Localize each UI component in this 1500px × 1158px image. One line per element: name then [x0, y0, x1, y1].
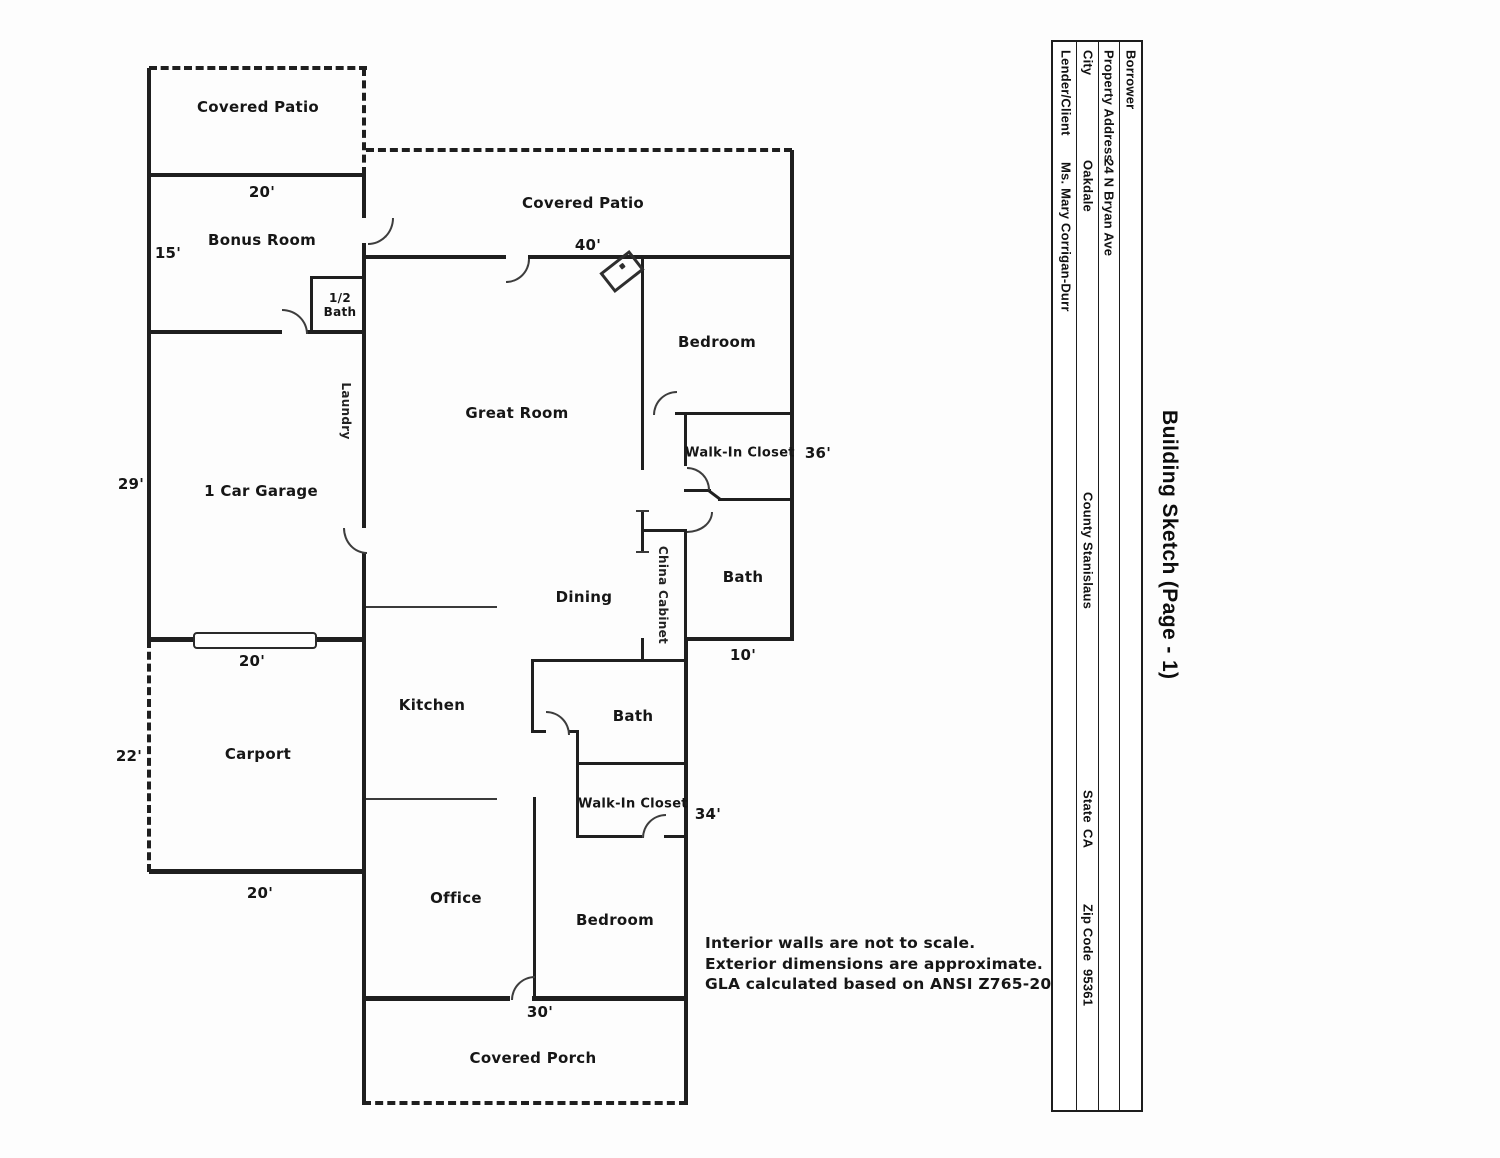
door-arc: [687, 512, 713, 533]
wall: [149, 173, 366, 177]
table-row-lender-client: Lender/Client Ms. Mary Corrigan-Durr: [1056, 42, 1077, 1110]
cell-label: Zip Code: [1080, 904, 1095, 961]
dashed-wall: [147, 640, 151, 872]
wall: [362, 243, 366, 528]
rotated-sidebar: Building Sketch (Page - 1) Borrower Prop…: [1051, 40, 1193, 1112]
room-label-dining: Dining: [556, 588, 613, 606]
counter-line: [366, 606, 497, 608]
door-arc: [642, 814, 666, 838]
door-arc: [368, 218, 394, 245]
room-label-bonus-room: Bonus Room: [208, 231, 316, 249]
room-label-walk-in-closet-middle: Walk-In Closet: [578, 797, 688, 812]
room-label-covered-patio-left: Covered Patio: [197, 98, 319, 116]
wall: [362, 255, 506, 259]
wall: [310, 278, 313, 333]
cell-label: Lender/Client: [1059, 50, 1074, 136]
room-label-covered-patio-top: Covered Patio: [522, 194, 644, 212]
dashed-wall: [149, 66, 367, 70]
wall: [310, 276, 366, 279]
wall: [576, 835, 642, 838]
wall: [664, 835, 687, 838]
door-arc: [687, 467, 710, 490]
dimension-label: 40': [575, 236, 601, 254]
room-label-walk-in-closet-right: Walk-In Closet: [685, 446, 795, 461]
dashed-wall: [363, 1101, 687, 1105]
china-cabinet-symbol: [636, 510, 649, 512]
wall: [528, 255, 794, 259]
wall: [641, 529, 686, 532]
dimension-label: 29': [118, 475, 144, 493]
sketch-notes: Interior walls are not to scale. Exterio…: [705, 933, 1079, 995]
note-line: Exterior dimensions are approximate.: [705, 954, 1079, 975]
wall: [149, 330, 282, 334]
cell-value: Oakdale: [1080, 160, 1095, 212]
room-label-carport: Carport: [225, 745, 291, 763]
room-label-bedroom-bottom: Bedroom: [576, 911, 654, 929]
wall: [531, 659, 687, 662]
cell-label: Borrower: [1123, 50, 1138, 109]
dashed-wall: [362, 68, 366, 175]
wall: [362, 175, 366, 218]
room-label-garage: 1 Car Garage: [204, 482, 318, 500]
door-arc: [653, 391, 677, 415]
room-label-covered-porch: Covered Porch: [470, 1049, 597, 1067]
wall: [684, 529, 687, 638]
wall: [576, 731, 579, 765]
door-arc: [282, 309, 308, 334]
wall: [532, 996, 688, 1001]
door-arc: [546, 711, 570, 735]
dimension-label: 20': [247, 884, 273, 902]
cell-label: Property Address: [1102, 50, 1117, 162]
wall: [149, 869, 366, 874]
dimension-label: 10': [730, 646, 756, 664]
dimension-label: 22': [116, 747, 142, 765]
room-label-bath-right: Bath: [723, 568, 764, 586]
cell-label: County: [1080, 492, 1095, 538]
room-label-bedroom-right: Bedroom: [678, 333, 756, 351]
table-row-property-address: Property Address 24 N Bryan Ave: [1098, 42, 1120, 1110]
wall: [362, 996, 510, 1001]
room-label-office: Office: [430, 889, 482, 907]
china-cabinet-symbol: [636, 551, 649, 553]
wall: [684, 637, 794, 641]
wall: [306, 330, 366, 334]
dashed-wall: [366, 148, 792, 152]
wall: [684, 638, 688, 1105]
wall: [531, 660, 534, 733]
cell-value: Stanislaus: [1080, 542, 1095, 609]
cell-value: 95361: [1080, 969, 1095, 1006]
wall: [533, 797, 536, 1000]
room-label-half-bath: 1/2 Bath: [324, 291, 357, 319]
page-title: Building Sketch (Page - 1): [1157, 410, 1181, 679]
dimension-label: 34': [695, 805, 721, 823]
wall: [531, 730, 546, 733]
room-label-bath-middle: Bath: [613, 707, 654, 725]
door-arc: [511, 976, 535, 1000]
wall: [718, 498, 794, 501]
dimension-label: 15': [155, 244, 181, 262]
dimension-label: 30': [527, 1003, 553, 1021]
wall: [576, 762, 687, 765]
wall: [362, 552, 366, 1105]
door-arc: [506, 259, 530, 283]
cell-label: State: [1080, 790, 1095, 823]
room-label-great-room: Great Room: [465, 404, 568, 422]
wall: [641, 257, 644, 470]
note-line: Interior walls are not to scale.: [705, 933, 1079, 954]
cell-value: 24 N Bryan Ave: [1102, 159, 1117, 256]
note-line: GLA calculated based on ANSI Z765-2021.: [705, 974, 1079, 995]
dimension-label: 36': [805, 444, 831, 462]
door-arc: [343, 528, 367, 554]
counter-line: [366, 798, 497, 800]
wall: [790, 150, 794, 640]
building-sketch-page: Covered Patio 20' Bonus Room 15' 1/2 Bat…: [0, 0, 1500, 1158]
property-info-table: Borrower Property Address 24 N Bryan Ave…: [1051, 40, 1143, 1112]
dimension-label: 20': [239, 652, 265, 670]
garage-door: [193, 632, 317, 649]
label-china-cabinet: China Cabinet: [656, 546, 670, 644]
dimension-label: 20': [249, 183, 275, 201]
room-label-laundry: Laundry: [339, 382, 353, 439]
table-row-borrower: Borrower: [1120, 42, 1142, 1110]
room-label-kitchen: Kitchen: [399, 696, 465, 714]
cell-value: Ms. Mary Corrigan-Durr: [1059, 162, 1074, 312]
china-cabinet-symbol: [641, 512, 644, 553]
cell-label: City: [1080, 50, 1095, 75]
wall: [147, 68, 151, 640]
wall: [675, 412, 794, 415]
cell-value: CA: [1080, 829, 1095, 848]
table-row-city: City Oakdale County Stanislaus State CA …: [1077, 42, 1099, 1110]
